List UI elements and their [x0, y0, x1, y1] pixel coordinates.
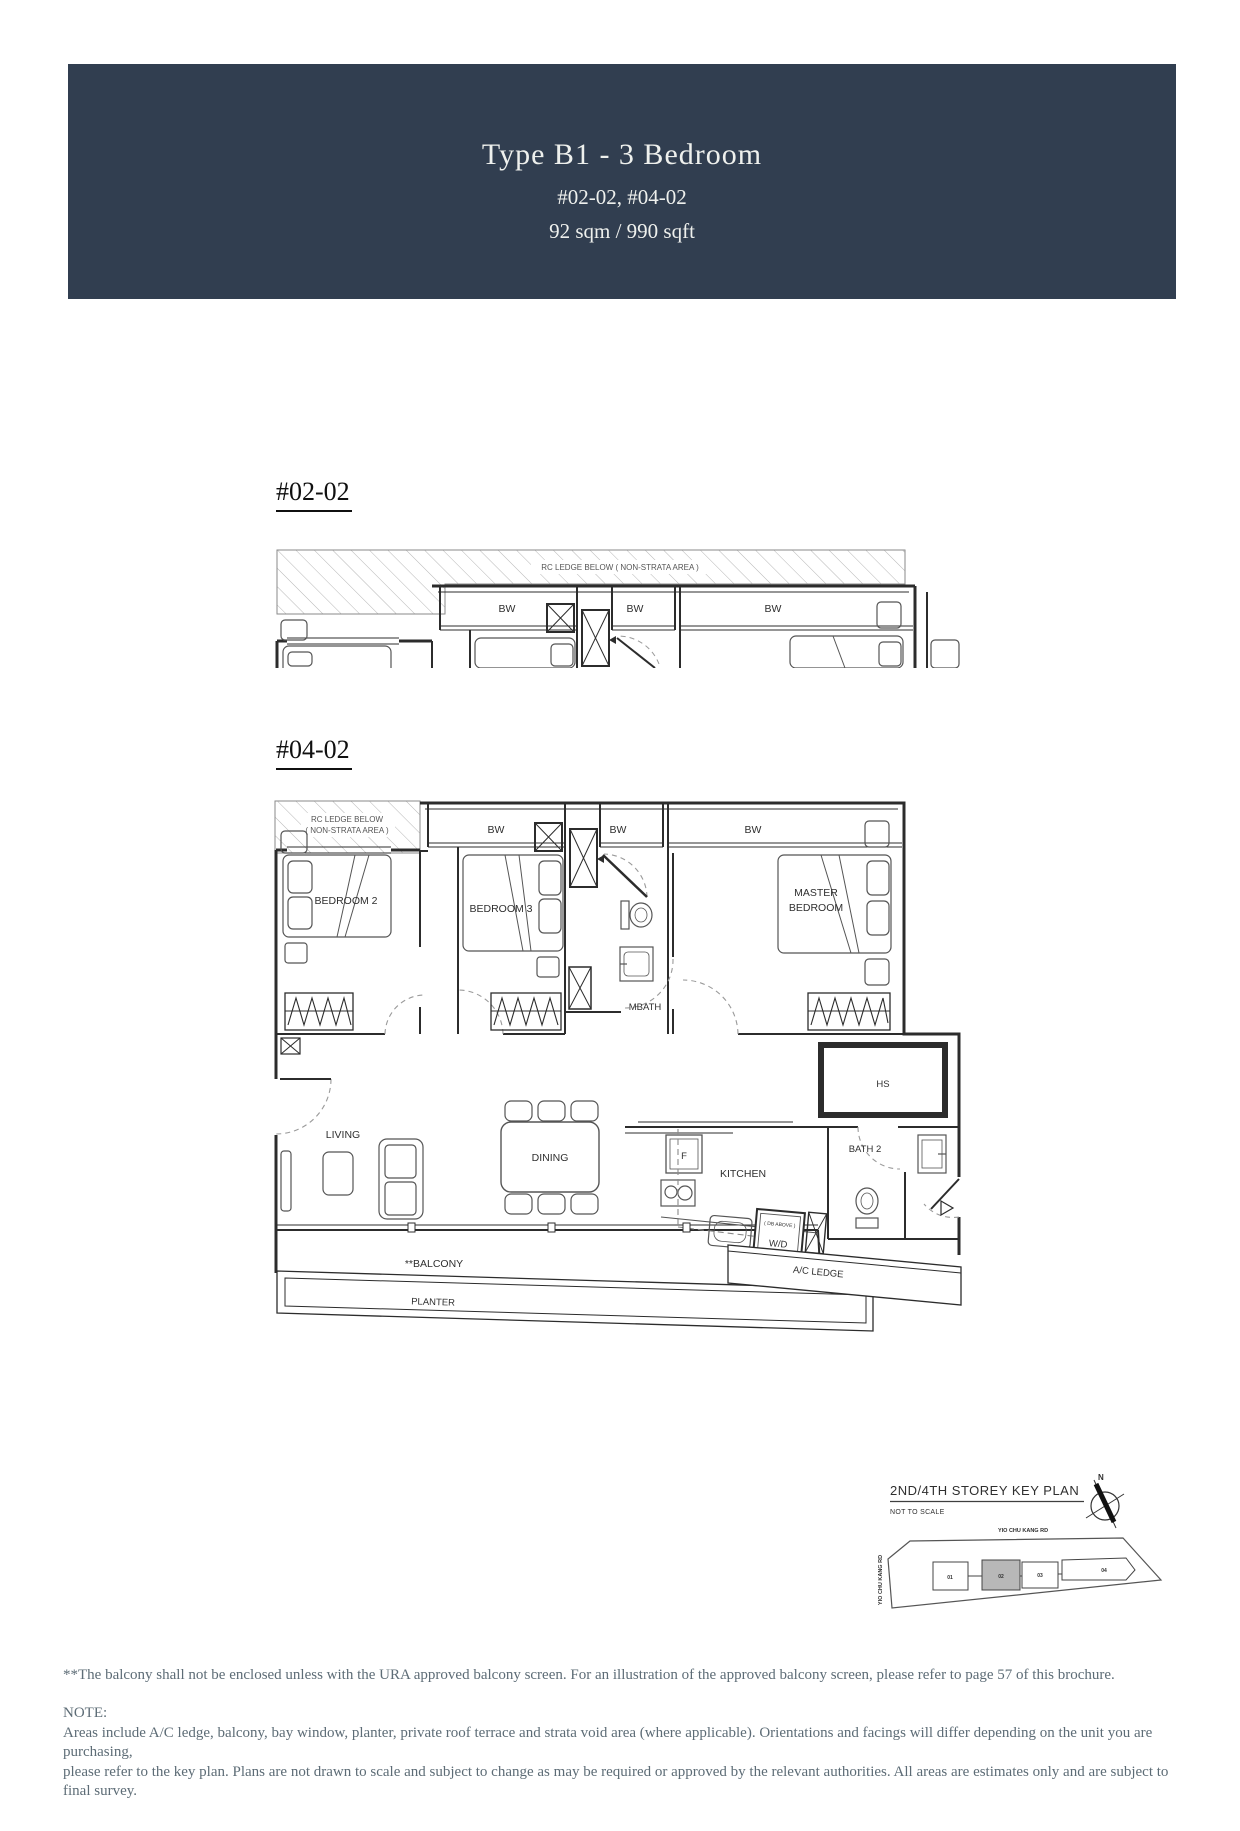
- room-label-dining: DINING: [532, 1152, 569, 1164]
- note-footnote: NOTE: Areas include A/C ledge, balcony, …: [63, 1704, 1185, 1802]
- bw-label: BW: [488, 824, 505, 836]
- road-label-left: YIO CHU KANG RD: [878, 1555, 884, 1605]
- title-banner: Type B1 - 3 Bedroom #02-02, #04-02 92 sq…: [68, 64, 1176, 299]
- door-leaves: [280, 855, 959, 1209]
- block-label-03: 03: [1037, 1573, 1043, 1579]
- room-label-master-2: BEDROOM: [789, 902, 843, 914]
- key-plan: 2ND/4TH STOREY KEY PLAN NOT TO SCALE N Y…: [858, 1468, 1178, 1633]
- bw-label: BW: [499, 603, 516, 615]
- key-plan-subtitle: NOT TO SCALE: [890, 1509, 945, 1516]
- room-label-hs: HS: [876, 1079, 889, 1090]
- service-shafts: [281, 823, 604, 1054]
- room-label-mbath: MBATH: [629, 1002, 662, 1013]
- master-bedroom: MASTER BEDROOM: [778, 821, 891, 1030]
- master-bath: MBATH: [620, 901, 661, 1013]
- room-label-master-1: MASTER: [794, 887, 838, 899]
- unit-blocks: 01 02 03 04: [933, 1558, 1135, 1590]
- floor-plan-02-02: RC LEDGE BELOW ( NON-STRATA AREA ): [273, 546, 963, 668]
- plan-label-02-02: #02-02: [276, 477, 352, 512]
- balcony: **BALCONY: [405, 1258, 463, 1270]
- room-label-planter: PLANTER: [411, 1296, 455, 1308]
- rc-ledge-hatch: RC LEDGE BELOW ( NON-STRATA AREA ): [275, 801, 420, 853]
- bw-label: BW: [610, 824, 627, 836]
- bay-window-labels: BW BW BW: [488, 824, 762, 836]
- note-label: NOTE:: [63, 1704, 1185, 1724]
- room-label-balcony: **BALCONY: [405, 1258, 463, 1270]
- room-label-bath2: BATH 2: [849, 1144, 882, 1155]
- rc-ledge-note-2: ( NON-STRATA AREA ): [305, 826, 389, 835]
- bath2: BATH 2: [849, 1135, 946, 1228]
- bedroom3: BEDROOM 3: [463, 855, 563, 1030]
- bay-window-labels: BW BW BW: [499, 603, 782, 615]
- rc-ledge-hatch: RC LEDGE BELOW ( NON-STRATA AREA ): [277, 550, 905, 614]
- note-line2: please refer to the key plan. Plans are …: [63, 1763, 1185, 1802]
- floor-plan-04-02: RC LEDGE BELOW ( NON-STRATA AREA ): [273, 797, 963, 1347]
- bw-label: BW: [745, 824, 762, 836]
- room-label-bedroom3: BEDROOM 3: [469, 903, 532, 915]
- bw-label: BW: [765, 603, 782, 615]
- rc-ledge-note: RC LEDGE BELOW ( NON-STRATA AREA ): [541, 563, 699, 572]
- room-label-living: LIVING: [326, 1129, 360, 1141]
- rc-ledge-note-1: RC LEDGE BELOW: [311, 815, 383, 824]
- unit-area: 92 sqm / 990 sqft: [68, 219, 1176, 244]
- living-dining: LIVING DINING: [281, 1101, 690, 1232]
- ac-ledge: A/C LEDGE: [728, 1245, 961, 1305]
- balcony-footnote: **The balcony shall not be enclosed unle…: [63, 1666, 1181, 1686]
- block-label-01: 01: [947, 1575, 953, 1581]
- key-plan-title: 2ND/4TH STOREY KEY PLAN: [890, 1483, 1079, 1498]
- room-label-bedroom2: BEDROOM 2: [314, 895, 377, 907]
- appliance-label-fridge: F: [681, 1151, 687, 1162]
- kitchen: F W/D ( DB ABOVE ) KITCHEN: [661, 1129, 827, 1257]
- bedroom2: BEDROOM 2: [281, 831, 391, 1030]
- unit-numbers: #02-02, #04-02: [68, 185, 1176, 210]
- north-label: N: [1098, 1473, 1104, 1482]
- north-arrow-icon: N: [1086, 1473, 1124, 1528]
- household-shelter: HS: [821, 1045, 953, 1215]
- brochure-page: Type B1 - 3 Bedroom #02-02, #04-02 92 sq…: [0, 0, 1240, 1831]
- page-title: Type B1 - 3 Bedroom: [68, 64, 1176, 172]
- block-label-02: 02: [998, 1574, 1004, 1580]
- block-label-04: 04: [1101, 1568, 1107, 1574]
- plan-label-04-02: #04-02: [276, 735, 352, 770]
- bw-label: BW: [627, 603, 644, 615]
- note-line1: Areas include A/C ledge, balcony, bay wi…: [63, 1724, 1185, 1763]
- road-label-top: YIO CHU KANG RD: [998, 1528, 1048, 1534]
- room-label-kitchen: KITCHEN: [720, 1168, 766, 1180]
